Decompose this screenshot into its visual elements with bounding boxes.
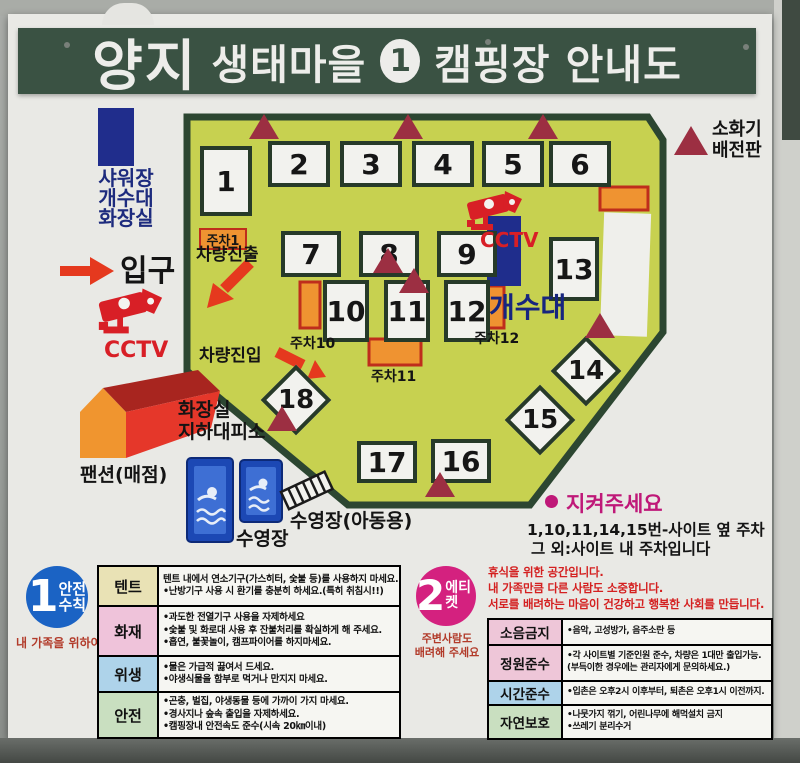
extinguisher-marker (585, 313, 615, 338)
shelter-label: 화장실 지하대피소 (178, 400, 265, 444)
etiquette-intro: 휴식을 위한 공간입니다. 내 가족만큼 다른 사람도 소중합니다. 서로를 배… (488, 564, 764, 612)
etiquette-subtitle: 주변사람도 배려해 주세요 (408, 632, 486, 661)
extinguisher-marker (249, 114, 279, 139)
extinguisher-marker (267, 406, 297, 431)
site-1: 1 (200, 146, 252, 216)
photo-of-sign: 양지 생태마을 1 캠핑장 안내도 (0, 0, 800, 763)
entrance-label: 입구 (120, 246, 175, 290)
table-row: 정원준수 •각 사이트별 기준인원 준수, 차량은 1대만 출입가능. (부득이… (489, 644, 771, 680)
safety-number-circle: 1 안전 수칙 (26, 566, 88, 628)
site-5: 5 (482, 141, 544, 187)
parking-10-mark (300, 282, 320, 328)
sink-label: 개수대 (489, 286, 566, 326)
pool-icon (187, 458, 233, 542)
cctv-legend-label: CCTV (104, 338, 168, 363)
vehicle-exit-label: 차량진출 (196, 240, 259, 265)
screw (485, 39, 491, 45)
parking-12-label: 주차12 (474, 328, 519, 348)
table-row: 소음금지 •음악, 고성방가, 음주소란 등 (489, 620, 771, 644)
safety-rules-table: 텐트 텐트 내에서 연소기구(가스히터, 숯불 등)를 사용하지 마세요. •난… (97, 565, 401, 739)
etiquette-number-circle: 2 에티켓 (416, 566, 476, 626)
parking-mark-right (600, 187, 648, 210)
table-row: 시간준수 •입촌은 오후2시 이후부터, 퇴촌은 오후1시 이전까지. (489, 680, 771, 704)
kids-pool-label: 수영장(아동용) (290, 506, 412, 533)
site-6: 6 (549, 141, 611, 187)
extinguisher-marker (528, 114, 558, 139)
site-4: 4 (412, 141, 474, 187)
pool-label: 수영장 (236, 524, 288, 551)
notice-title: 지켜주세요 (566, 488, 663, 518)
site-17: 17 (357, 441, 417, 483)
site-7: 7 (281, 231, 341, 277)
etiquette-rules-table: 소음금지 •음악, 고성방가, 음주소란 등 정원준수 •각 사이트별 기준인원… (487, 618, 773, 740)
parking-10-label: 주차10 (290, 333, 335, 353)
pension-label: 팬션(매점) (80, 460, 167, 487)
table-row: 자연보호 •나뭇가지 꺾기, 어린나무에 해먹설치 금지 •쓰레기 분리수거 (489, 704, 771, 738)
extinguisher-legend-label: 소화기 배전판 (712, 120, 762, 161)
parking-11-mark (369, 339, 421, 365)
extinguisher-marker (399, 268, 429, 293)
parking-11-label: 주차11 (371, 366, 416, 386)
cctv-map-label: CCTV (480, 228, 538, 252)
screw (64, 42, 70, 48)
ladder-icon (281, 472, 333, 510)
notice-bullet (545, 495, 558, 508)
facility-block-icon (98, 108, 134, 166)
notice-line2: 그 외:사이트 내 주차입니다 (531, 537, 710, 559)
table-row: 안전 •곤충, 벌집, 야생동물 등에 가까이 가지 마세요. •경사지나 숲속… (99, 691, 399, 737)
table-row: 위생 •물은 가급적 끓여서 드세요. •야생식물을 함부로 먹거나 만지지 마… (99, 655, 399, 691)
screw (743, 44, 749, 50)
facility-legend-label: 샤워장 개수대 화장실 (76, 168, 176, 228)
table-row: 화재 •과도한 전열기구 사용을 자제하세요 •숯불 및 화로대 사용 후 잔불… (99, 605, 399, 655)
entrance-arrow (60, 257, 114, 285)
site-2: 2 (268, 141, 330, 187)
extinguisher-marker (425, 472, 455, 497)
extinguisher-legend-icon (674, 126, 708, 155)
vehicle-entry-label: 차량진입 (199, 341, 262, 366)
cctv-camera-icon-legend (98, 289, 162, 334)
extinguisher-marker (393, 114, 423, 139)
safety-subtitle: 내 가족을 위하여 (16, 634, 98, 651)
site-3: 3 (340, 141, 402, 187)
table-row: 텐트 텐트 내에서 연소기구(가스히터, 숯불 등)를 사용하지 마세요. •난… (99, 567, 399, 605)
kids-pool-icon (240, 460, 282, 522)
